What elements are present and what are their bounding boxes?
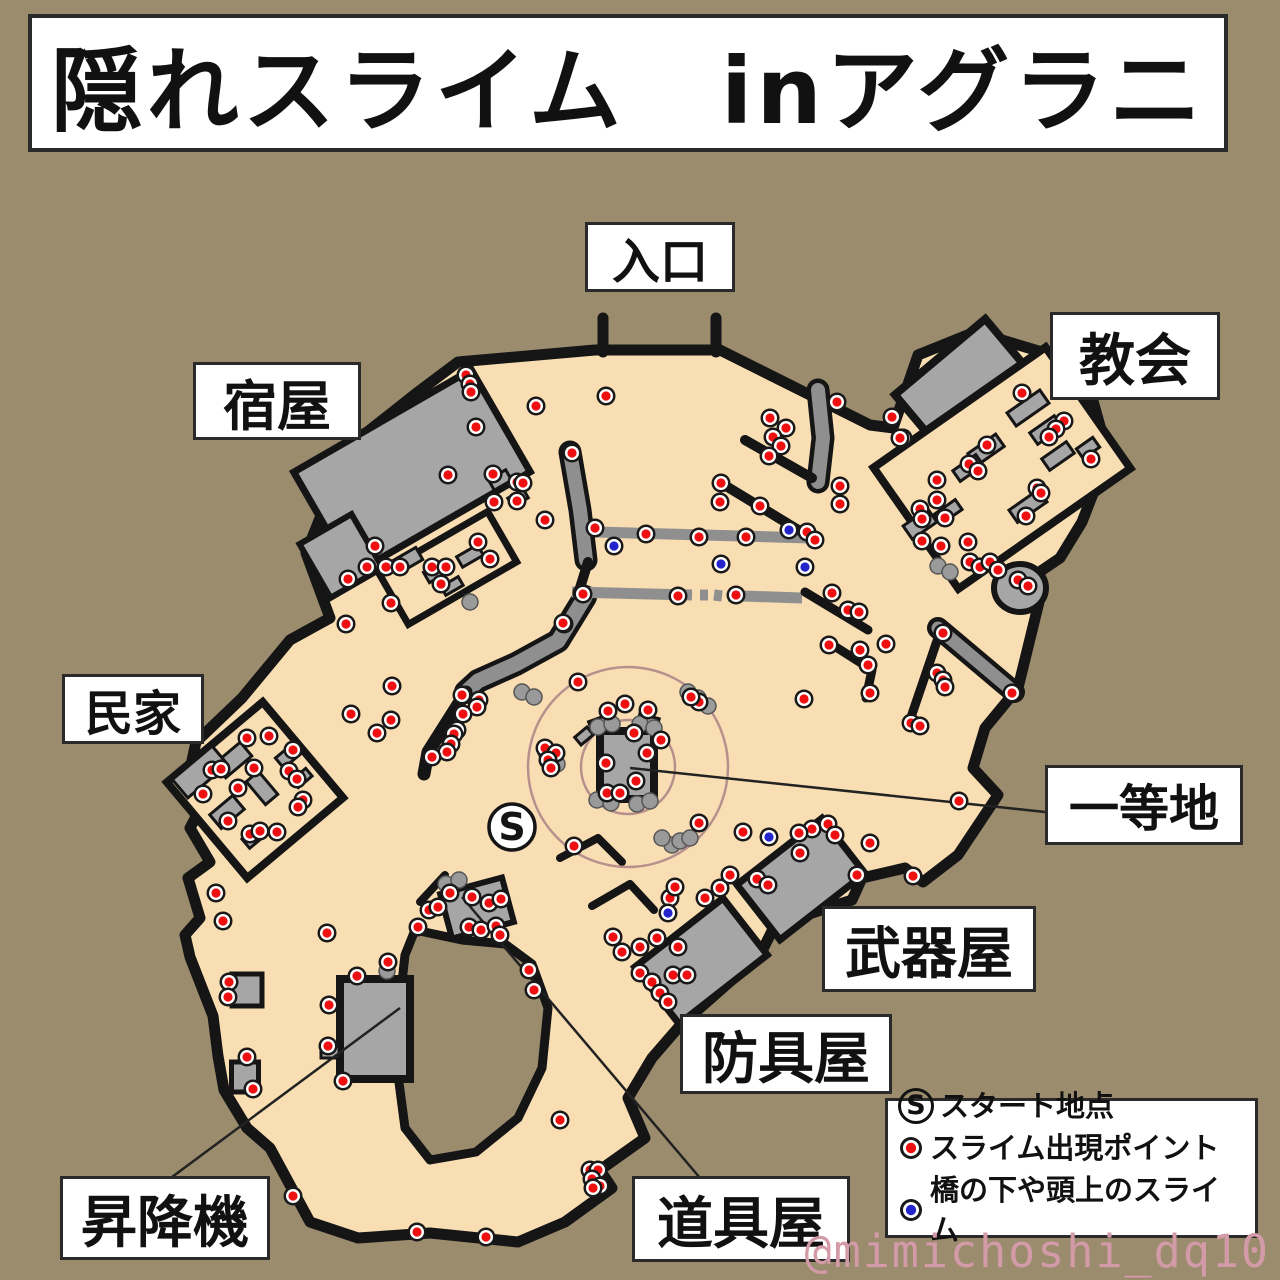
slime-point — [616, 695, 635, 714]
slime-point — [911, 717, 930, 736]
slime-point — [288, 770, 307, 789]
slime-point — [525, 981, 544, 1000]
slime-point — [1082, 450, 1101, 469]
road — [818, 390, 823, 482]
map-label-church: 教会 — [1050, 312, 1220, 400]
slime-point — [791, 844, 810, 863]
slime-point — [194, 785, 213, 804]
slime-point — [527, 397, 546, 416]
slime-point — [913, 532, 932, 551]
slime-point — [439, 466, 458, 485]
slime-point — [959, 533, 978, 552]
slime-point — [690, 814, 709, 833]
slime-point — [721, 866, 740, 885]
legend-start-label: スタート地点 — [940, 1086, 1114, 1126]
slime-point — [339, 570, 358, 589]
slime-point — [669, 587, 688, 606]
map-label-elevator: 昇降機 — [60, 1176, 270, 1260]
building-elevator — [340, 979, 410, 1079]
slime-point — [409, 918, 428, 937]
knob — [942, 564, 958, 580]
slime-point — [207, 884, 226, 903]
slime-point — [268, 823, 287, 842]
slime-point — [625, 724, 644, 743]
slime-point — [212, 760, 231, 779]
slime-point — [245, 759, 264, 778]
slime-point — [383, 677, 402, 696]
bridge — [714, 595, 722, 596]
slime-point — [678, 966, 697, 985]
slime-point — [831, 477, 850, 496]
start-point-marker: S — [489, 804, 535, 850]
slime-point — [737, 528, 756, 547]
slime-point — [828, 393, 847, 412]
slime-point — [368, 724, 387, 743]
knob — [682, 830, 698, 846]
bridge — [742, 596, 802, 598]
slime-point — [1040, 428, 1059, 447]
slime-point — [682, 688, 701, 707]
slime-point — [477, 1228, 496, 1247]
bridge-slime-point — [712, 555, 731, 574]
slime-point — [936, 509, 955, 528]
slime-point — [348, 967, 367, 986]
slime-point — [599, 702, 618, 721]
slime-point — [659, 993, 678, 1012]
slime-point — [712, 474, 731, 493]
slime-point — [423, 748, 442, 767]
slime-point — [795, 690, 814, 709]
slime-point — [613, 943, 632, 962]
slime-point — [481, 550, 500, 569]
slime-point — [727, 586, 746, 605]
slime-point — [260, 727, 279, 746]
slime-point — [597, 387, 616, 406]
slime-point — [932, 537, 951, 556]
slime-point — [574, 585, 593, 604]
slime-point — [1032, 484, 1051, 503]
slime-point — [611, 784, 630, 803]
slime-point — [366, 537, 385, 556]
slime-point — [936, 678, 955, 697]
slime-point — [790, 824, 809, 843]
slime-point — [969, 462, 988, 481]
knob — [462, 594, 478, 610]
slime-point — [484, 465, 503, 484]
legend-row-start: S スタート地点 — [898, 1086, 1114, 1126]
slime-point — [320, 996, 339, 1015]
slime-point — [859, 656, 878, 675]
slime-map-screenshot: S 隠れスライム inアグラニ 入口宿屋教会民家一等地武器屋防具屋道具屋昇降機 … — [0, 0, 1280, 1280]
slime-point — [734, 823, 753, 842]
bridge-slime-point — [796, 558, 815, 577]
slime-point — [463, 888, 482, 907]
slime-point — [565, 837, 584, 856]
slime-point — [978, 436, 997, 455]
slime-point — [584, 1179, 603, 1198]
slime-point — [586, 519, 605, 538]
slime-point — [1013, 384, 1032, 403]
slime-point — [238, 729, 257, 748]
slime-point — [761, 409, 780, 428]
slime-point — [627, 772, 646, 791]
map-label-inn: 宿屋 — [193, 362, 361, 440]
slime-point — [638, 744, 657, 763]
slime-point — [989, 561, 1008, 580]
slime-point — [652, 731, 671, 750]
slime-point — [1019, 577, 1038, 596]
slime-point — [1017, 507, 1036, 526]
slime-point — [831, 495, 850, 514]
slime-point — [284, 1187, 303, 1206]
legend-slime-label: スライム出現ポイント — [930, 1128, 1219, 1168]
slime-point — [631, 938, 650, 957]
slime-point — [492, 890, 511, 909]
slime-point — [1003, 684, 1022, 703]
slime-point — [711, 493, 730, 512]
slime-point — [514, 474, 533, 493]
slime-point — [358, 558, 377, 577]
slime-point — [877, 635, 896, 654]
bridge-slime-point — [780, 521, 799, 540]
slime-point — [806, 531, 825, 550]
slime-point — [569, 673, 588, 692]
slime-point — [891, 429, 910, 448]
knob — [526, 689, 542, 705]
map-label-armor-shop: 防具屋 — [680, 1014, 892, 1094]
slime-point — [826, 826, 845, 845]
slime-point — [342, 705, 361, 724]
slime-point — [669, 938, 688, 957]
slime-point — [639, 701, 658, 720]
slime-point — [597, 754, 616, 773]
slime-point — [229, 779, 248, 798]
watermark: @mimichoshi_dq10 — [805, 1225, 1270, 1278]
slime-point — [318, 924, 337, 943]
bridge-slime-point — [605, 537, 624, 556]
slime-point — [928, 471, 947, 490]
slime-point — [823, 584, 842, 603]
slime-point — [219, 812, 238, 831]
slime-point — [563, 444, 582, 463]
map-title: 隠れスライム inアグラニ — [28, 14, 1228, 152]
slime-point — [432, 575, 451, 594]
slime-point — [244, 1080, 263, 1099]
slime-point — [637, 525, 656, 544]
slime-point — [334, 1072, 353, 1091]
legend: S スタート地点 スライム出現ポイント 橋の下や頭上のスライム — [885, 1098, 1258, 1238]
slime-point — [848, 866, 867, 885]
slime-point — [928, 491, 947, 510]
slime-point — [429, 898, 448, 917]
slime-point — [913, 510, 932, 529]
slime-point-icon — [898, 1135, 924, 1161]
start-point-icon: S — [898, 1088, 934, 1124]
slime-point — [485, 493, 504, 512]
slime-point — [467, 418, 486, 437]
map-label-prime-location: 一等地 — [1045, 765, 1243, 845]
slime-point — [751, 497, 770, 516]
slime-point — [820, 636, 839, 655]
slime-point — [214, 912, 233, 931]
slime-point — [759, 876, 778, 895]
map-label-weapon-shop: 武器屋 — [822, 906, 1036, 992]
slime-point — [861, 834, 880, 853]
slime-point — [760, 447, 779, 466]
slime-point — [666, 878, 685, 897]
slime-point — [219, 988, 238, 1007]
map-label-entrance: 入口 — [585, 222, 735, 292]
slime-point — [453, 686, 472, 705]
slime-point — [462, 383, 481, 402]
bridge-slime-point-icon — [898, 1197, 924, 1223]
slime-point — [861, 684, 880, 703]
slime-point — [883, 408, 902, 427]
slime-point — [554, 614, 573, 633]
knob — [654, 830, 670, 846]
knob — [590, 719, 606, 735]
slime-point — [850, 603, 869, 622]
svg-text:S: S — [498, 805, 525, 849]
slime-point — [408, 1223, 427, 1242]
slime-point — [379, 953, 398, 972]
slime-point — [536, 511, 555, 530]
slime-point — [491, 926, 510, 945]
slime-point — [904, 867, 923, 886]
slime-point — [382, 594, 401, 613]
slime-point — [437, 558, 456, 577]
slime-point — [508, 492, 527, 511]
bridge-slime-point — [760, 828, 779, 847]
knob — [642, 793, 658, 809]
slime-point — [289, 798, 308, 817]
slime-point — [551, 1111, 570, 1130]
bridge-slime-point — [659, 904, 678, 923]
slime-point — [251, 822, 270, 841]
slime-point — [238, 1048, 257, 1067]
slime-point — [520, 961, 539, 980]
slime-point — [690, 528, 709, 547]
slime-point — [382, 711, 401, 730]
slime-point — [934, 624, 953, 643]
slime-point — [469, 533, 488, 552]
legend-row-slime: スライム出現ポイント — [898, 1128, 1219, 1168]
map-title-text: 隠れスライム inアグラニ — [51, 17, 1206, 150]
slime-point — [337, 615, 356, 634]
slime-point — [319, 1037, 338, 1056]
slime-point — [648, 929, 667, 948]
map-label-private-house: 民家 — [62, 674, 204, 744]
slime-point — [542, 759, 561, 778]
slime-point — [391, 558, 410, 577]
slime-point — [950, 792, 969, 811]
slime-point — [284, 741, 303, 760]
